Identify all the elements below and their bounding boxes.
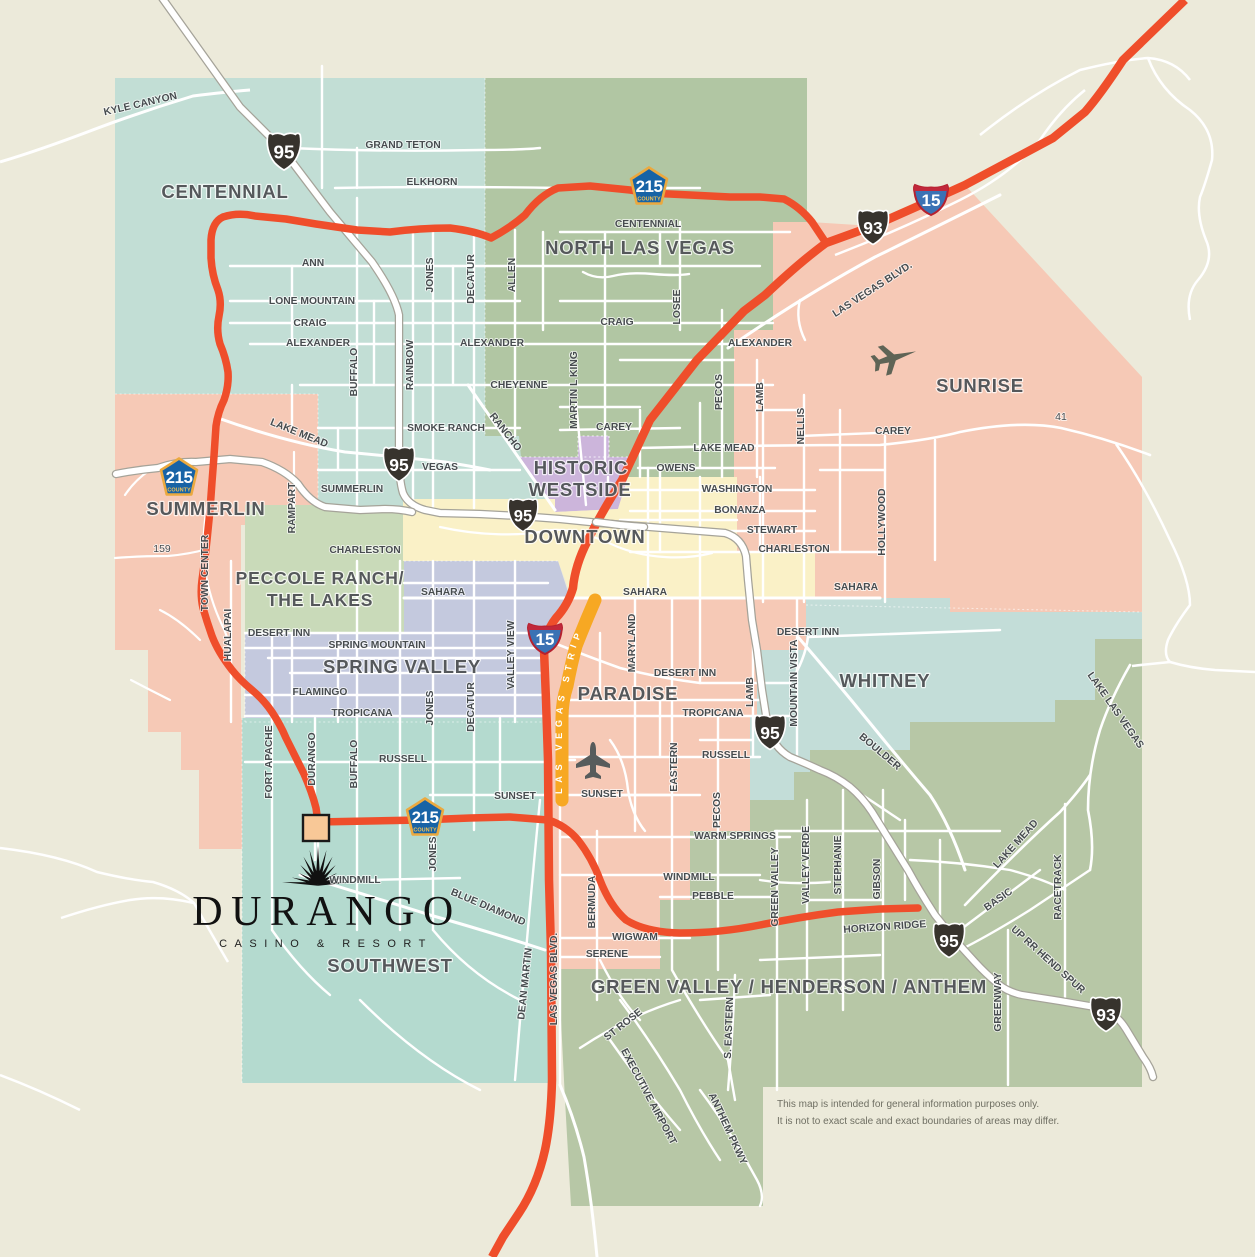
svg-text:SUMMERLIN: SUMMERLIN [321, 484, 383, 495]
svg-text:SOUTHWEST: SOUTHWEST [327, 955, 452, 976]
svg-text:THE LAKES: THE LAKES [267, 590, 373, 610]
svg-text:DURANGO: DURANGO [307, 732, 318, 785]
svg-text:DECATUR: DECATUR [466, 682, 477, 732]
svg-text:BUFFALO: BUFFALO [349, 740, 360, 789]
svg-text:HOLLYWOOD: HOLLYWOOD [877, 488, 888, 555]
svg-text:FLAMINGO: FLAMINGO [293, 687, 348, 698]
svg-text:DECATUR: DECATUR [466, 254, 477, 304]
svg-text:SAHARA: SAHARA [834, 582, 879, 593]
svg-text:COUNTY: COUNTY [413, 828, 437, 834]
svg-text:GRAND TETON: GRAND TETON [365, 140, 440, 151]
svg-text:LAMB: LAMB [745, 677, 756, 707]
svg-text:41: 41 [1055, 411, 1067, 423]
svg-text:WARM SPRINGS: WARM SPRINGS [694, 831, 776, 842]
svg-text:95: 95 [273, 143, 294, 164]
svg-text:DESERT INN: DESERT INN [248, 628, 310, 639]
svg-text:PEBBLE: PEBBLE [692, 891, 734, 902]
svg-text:GREEN VALLEY: GREEN VALLEY [770, 847, 781, 926]
svg-text:DOWNTOWN: DOWNTOWN [524, 526, 645, 547]
svg-text:215: 215 [412, 808, 439, 827]
svg-text:CAREY: CAREY [596, 422, 632, 433]
svg-text:BUFFALO: BUFFALO [349, 348, 360, 397]
svg-text:NELLIS: NELLIS [796, 408, 807, 445]
svg-text:JONES: JONES [425, 257, 436, 292]
svg-text:WHITNEY: WHITNEY [840, 670, 931, 691]
svg-text:LAMB: LAMB [755, 382, 766, 412]
svg-text:GREEN VALLEY / HENDERSON / ANT: GREEN VALLEY / HENDERSON / ANTHEM [591, 976, 987, 997]
svg-text:CRAIG: CRAIG [293, 318, 326, 329]
svg-text:15: 15 [536, 630, 555, 649]
svg-text:SPRING MOUNTAIN: SPRING MOUNTAIN [328, 640, 425, 651]
svg-text:VALLEY VIEW: VALLEY VIEW [506, 620, 517, 689]
svg-text:WIGWAM: WIGWAM [612, 932, 658, 943]
svg-text:CHARLESTON: CHARLESTON [329, 545, 400, 556]
svg-text:CHEYENNE: CHEYENNE [490, 380, 547, 391]
svg-text:RUSSELL: RUSSELL [702, 750, 750, 761]
svg-text:MARTIN L KING: MARTIN L KING [569, 351, 580, 429]
svg-text:TOWN CENTER: TOWN CENTER [200, 534, 211, 611]
svg-text:ALLEN: ALLEN [507, 258, 518, 292]
svg-text:95: 95 [939, 931, 959, 951]
svg-text:TROPICANA: TROPICANA [682, 708, 744, 719]
svg-text:DESERT INN: DESERT INN [777, 627, 839, 638]
svg-text:95: 95 [760, 723, 780, 743]
svg-text:RAMPART: RAMPART [287, 482, 298, 533]
svg-text:WASHINGTON: WASHINGTON [702, 484, 773, 495]
svg-text:SUMMERLIN: SUMMERLIN [146, 498, 265, 519]
svg-text:This map is intended for gener: This map is intended for general informa… [777, 1099, 1039, 1110]
svg-text:SERENE: SERENE [586, 949, 628, 960]
svg-text:LONE MOUNTAIN: LONE MOUNTAIN [269, 296, 355, 307]
svg-text:HUALAPAI: HUALAPAI [223, 609, 234, 662]
svg-text:STEWART: STEWART [747, 525, 798, 536]
svg-text:215: 215 [166, 468, 193, 487]
svg-text:EASTERN: EASTERN [669, 742, 680, 791]
svg-text:PARADISE: PARADISE [578, 683, 679, 704]
svg-text:ALEXANDER: ALEXANDER [728, 338, 793, 349]
svg-text:SUNSET: SUNSET [581, 789, 623, 800]
svg-text:95: 95 [514, 507, 532, 526]
svg-text:CENTENNIAL: CENTENNIAL [161, 181, 288, 202]
svg-text:RUSSELL: RUSSELL [379, 754, 427, 765]
svg-text:LAS VEGAS BLVD.: LAS VEGAS BLVD. [549, 933, 560, 1026]
svg-text:RACETRACK: RACETRACK [1053, 854, 1064, 920]
svg-text:95: 95 [389, 455, 409, 475]
svg-text:ALEXANDER: ALEXANDER [460, 338, 525, 349]
svg-text:COUNTY: COUNTY [637, 197, 661, 203]
svg-text:SUNRISE: SUNRISE [936, 375, 1024, 396]
svg-text:WINDMILL: WINDMILL [329, 875, 380, 886]
svg-text:VALLEY VERDE: VALLEY VERDE [801, 826, 812, 904]
svg-text:COUNTY: COUNTY [167, 488, 191, 494]
svg-text:WINDMILL: WINDMILL [663, 872, 714, 883]
svg-text:93: 93 [863, 218, 883, 238]
svg-text:CHARLESTON: CHARLESTON [758, 544, 829, 555]
svg-text:GREENWAY: GREENWAY [993, 972, 1004, 1031]
svg-text:DESERT INN: DESERT INN [654, 668, 716, 679]
svg-text:HISTORIC: HISTORIC [534, 457, 628, 478]
svg-text:SUNSET: SUNSET [494, 791, 536, 802]
svg-text:DURANGO: DURANGO [192, 889, 462, 935]
svg-text:WESTSIDE: WESTSIDE [528, 479, 631, 500]
svg-text:It is not to exact scale and e: It is not to exact scale and exact bound… [777, 1116, 1059, 1127]
svg-text:FORT APACHE: FORT APACHE [264, 725, 275, 798]
svg-text:OWENS: OWENS [657, 463, 696, 474]
svg-text:159: 159 [153, 543, 171, 555]
svg-text:BONANZA: BONANZA [714, 505, 766, 516]
svg-text:PECOS: PECOS [714, 374, 725, 410]
svg-text:SAHARA: SAHARA [623, 587, 668, 598]
svg-text:BERMUDA: BERMUDA [587, 875, 598, 928]
svg-text:CAREY: CAREY [875, 426, 911, 437]
svg-text:VEGAS: VEGAS [422, 462, 458, 473]
svg-text:ANN: ANN [302, 258, 324, 269]
svg-text:JONES: JONES [428, 836, 439, 871]
svg-text:NORTH LAS VEGAS: NORTH LAS VEGAS [545, 237, 735, 258]
svg-text:MARYLAND: MARYLAND [627, 614, 638, 673]
svg-text:MOUNTAIN VISTA: MOUNTAIN VISTA [789, 639, 800, 727]
svg-text:SAHARA: SAHARA [421, 587, 466, 598]
svg-text:CASINO & RESORT: CASINO & RESORT [219, 938, 433, 950]
svg-text:215: 215 [636, 177, 663, 196]
svg-text:JONES: JONES [425, 690, 436, 725]
svg-text:ELKHORN: ELKHORN [407, 177, 458, 188]
svg-text:GIBSON: GIBSON [872, 859, 883, 900]
svg-text:SPRING VALLEY: SPRING VALLEY [323, 656, 481, 677]
svg-text:RAINBOW: RAINBOW [405, 340, 416, 391]
svg-text:93: 93 [1096, 1005, 1116, 1025]
svg-text:CRAIG: CRAIG [600, 317, 633, 328]
svg-text:LOSEE: LOSEE [672, 289, 683, 324]
svg-text:SMOKE RANCH: SMOKE RANCH [407, 423, 485, 434]
svg-text:CENTENNIAL: CENTENNIAL [615, 219, 681, 230]
svg-text:PECOS: PECOS [712, 792, 723, 828]
svg-text:S. EASTERN: S. EASTERN [723, 997, 736, 1059]
svg-text:PECCOLE RANCH/: PECCOLE RANCH/ [236, 568, 405, 588]
svg-text:ALEXANDER: ALEXANDER [286, 338, 351, 349]
svg-text:STEPHANIE: STEPHANIE [833, 835, 844, 894]
svg-text:LAKE MEAD: LAKE MEAD [693, 443, 754, 454]
svg-text:TROPICANA: TROPICANA [331, 708, 393, 719]
svg-text:15: 15 [922, 191, 941, 210]
